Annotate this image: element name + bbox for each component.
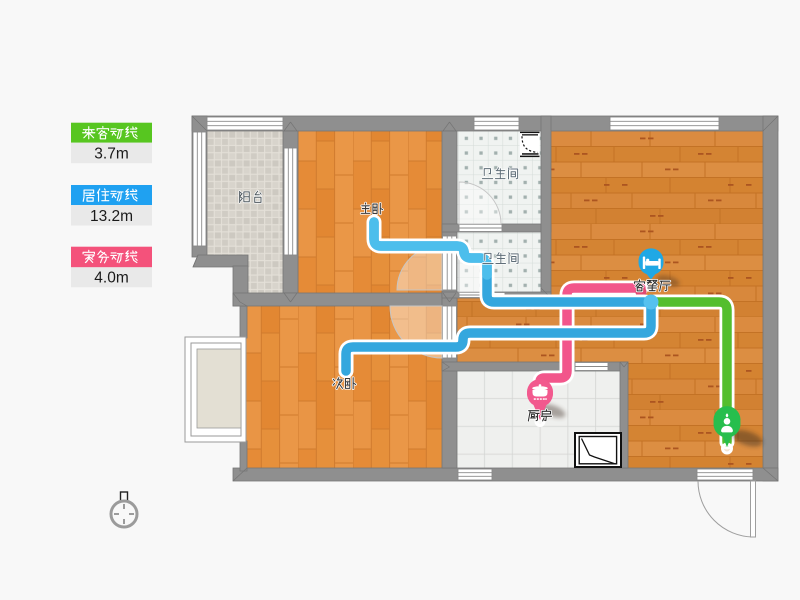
- svg-text:4.0m: 4.0m: [94, 270, 128, 287]
- svg-text:13.2m: 13.2m: [90, 208, 133, 225]
- svg-text:3.7m: 3.7m: [94, 146, 128, 163]
